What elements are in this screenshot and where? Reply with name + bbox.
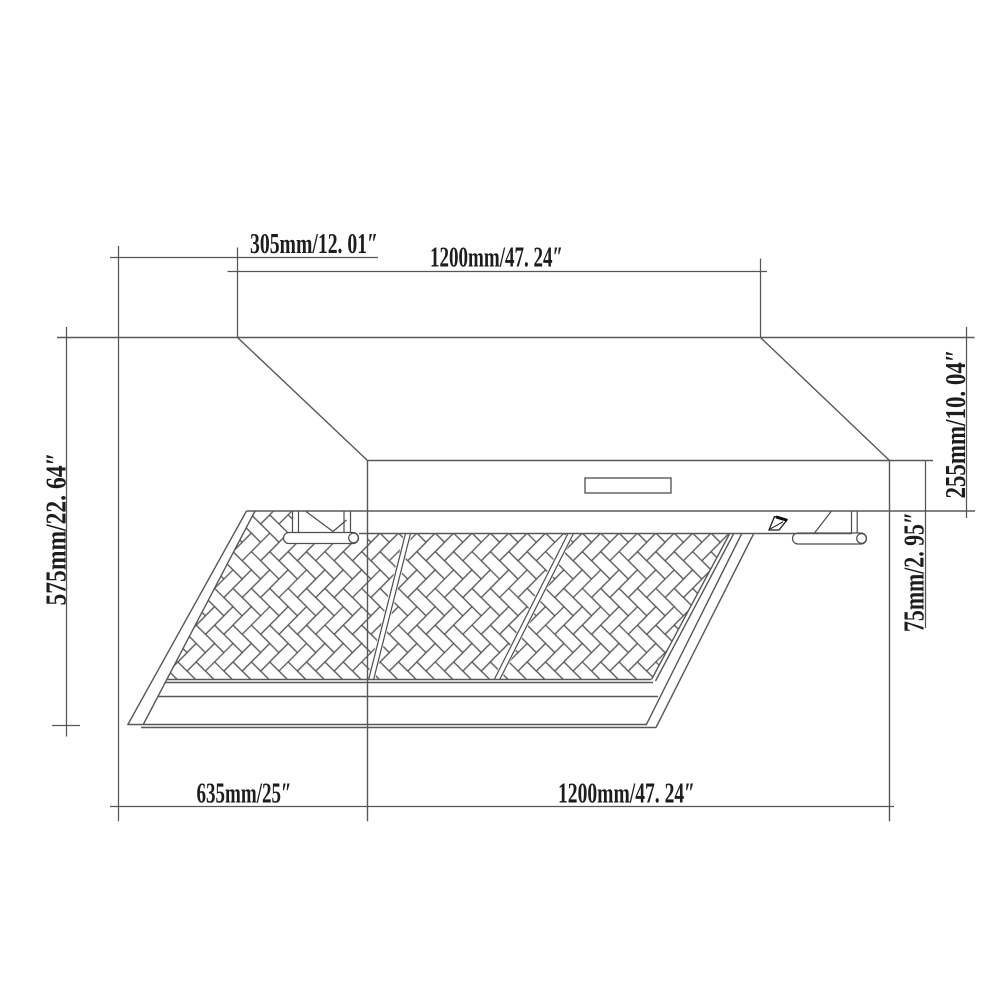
svg-text:255mm/10. 04″: 255mm/10. 04″ [941, 350, 972, 499]
svg-text:635mm/25″: 635mm/25″ [197, 779, 292, 810]
svg-text:305mm/12. 01″: 305mm/12. 01″ [250, 229, 378, 260]
svg-text:575mm/22. 64″: 575mm/22. 64″ [42, 453, 73, 606]
svg-text:1200mm/47. 24″: 1200mm/47. 24″ [558, 779, 695, 810]
svg-text:75mm/2. 95″: 75mm/2. 95″ [900, 512, 931, 632]
svg-text:1200mm/47. 24″: 1200mm/47. 24″ [430, 243, 563, 274]
